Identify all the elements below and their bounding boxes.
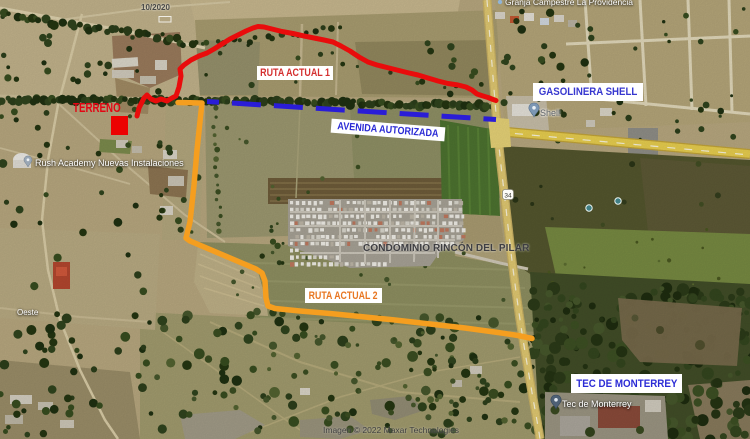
svg-text:34: 34 <box>504 192 512 199</box>
